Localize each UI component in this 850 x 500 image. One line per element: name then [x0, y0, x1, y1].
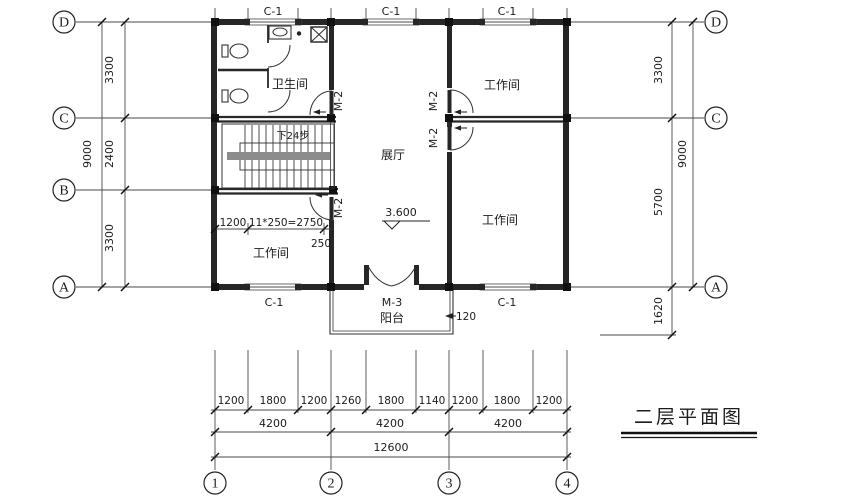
- stair-handrail-band: [227, 152, 330, 160]
- dim-stair-1200: 1200: [220, 217, 247, 229]
- elevation-marker: [382, 221, 430, 229]
- dim-overall-12600: 12600: [374, 441, 409, 454]
- floor-plan-canvas: D C B A D C A 1 2 3 4 3300 2400 3300 900…: [0, 0, 850, 500]
- grid-label-2: 2: [328, 477, 335, 492]
- window-c1-top-right: [479, 19, 536, 25]
- door-label-m3: M-3: [382, 296, 402, 309]
- window-label-c1-top-middle: C-1: [382, 5, 401, 18]
- grid-label-b-left: B: [59, 184, 68, 199]
- room-label-workshop-top: 工作间: [484, 78, 520, 92]
- grid-label-c-left: C: [59, 112, 68, 127]
- door-m2-workshop-top-right: [448, 90, 474, 115]
- title-underline: [621, 433, 757, 438]
- dim-b6: 1140: [419, 395, 446, 407]
- window-c1-top-middle: [362, 19, 419, 25]
- window-label-c1-top-left: C-1: [264, 5, 283, 18]
- door-m2-bathroom: [310, 91, 334, 115]
- dim-bay-3: 4200: [494, 417, 522, 430]
- window-label-c1-bottom-left: C-1: [265, 296, 284, 309]
- balcony-offset-arrow: [445, 313, 456, 319]
- door-m2-workshop-left: [310, 192, 334, 220]
- dim-right-5700: 5700: [652, 188, 665, 216]
- dim-b9: 1200: [536, 395, 563, 407]
- grid-label-4: 4: [564, 477, 571, 492]
- dim-balcony-120: 120: [456, 311, 476, 323]
- dim-b2: 1800: [260, 395, 287, 407]
- room-label-workshop-right: 工作间: [482, 213, 518, 227]
- grid-label-3: 3: [446, 477, 453, 492]
- stall-door-arc-1: [268, 45, 290, 67]
- drain-dot: [297, 31, 301, 35]
- door-label-m2-left: M-2: [332, 198, 345, 218]
- dim-right-3300: 3300: [652, 56, 665, 84]
- door-m2-workshop-right: [448, 125, 474, 150]
- window-c1-bottom-right: [479, 284, 536, 290]
- floor-plan-drawing: D C B A D C A 1 2 3 4 3300 2400 3300 900…: [0, 0, 850, 500]
- dim-right-9000: 9000: [676, 140, 689, 168]
- bathroom-fixtures: [218, 25, 327, 112]
- room-label-hall: 展厅: [381, 148, 405, 162]
- dimension-ticks-vertical: [98, 18, 697, 339]
- stair-note: 下24步: [277, 130, 310, 142]
- window-c1-top-left: [244, 19, 301, 25]
- dim-b1: 1200: [218, 395, 245, 407]
- dim-stair-250: 250: [311, 238, 331, 250]
- grid-label-d-right: D: [711, 16, 721, 31]
- dim-b3: 1200: [301, 395, 328, 407]
- grid-lines: [76, 22, 704, 335]
- toilet-2: [222, 89, 248, 103]
- dim-b4: 1260: [335, 395, 362, 407]
- dim-left-3300-top: 3300: [103, 56, 116, 84]
- room-label-workshop-left: 工作间: [253, 246, 289, 260]
- dimension-lines-vertical: [102, 22, 693, 335]
- drawing-title: 二层平面图: [634, 406, 744, 428]
- dim-right-1620: 1620: [652, 297, 665, 325]
- dim-left-3300-bot: 3300: [103, 224, 116, 252]
- grid-label-1: 1: [212, 477, 219, 492]
- dim-b8: 1800: [494, 395, 521, 407]
- grid-label-c-right: C: [711, 112, 720, 127]
- room-label-bathroom: 卫生间: [272, 77, 308, 91]
- toilet-1: [222, 44, 248, 58]
- dim-left-9000: 9000: [81, 140, 94, 168]
- window-c1-bottom-left: [244, 284, 301, 290]
- door-label-m2-top-right: M-2: [427, 91, 440, 111]
- door-label-m2-right: M-2: [427, 128, 440, 148]
- dim-stair-run: 11*250=2750: [249, 217, 323, 229]
- dim-bay-1: 4200: [259, 417, 287, 430]
- grid-label-d-left: D: [59, 16, 69, 31]
- sink: [269, 26, 291, 39]
- grid-label-a-right: A: [711, 281, 722, 296]
- dim-b7: 1200: [452, 395, 479, 407]
- dim-left-2400: 2400: [103, 140, 116, 168]
- door-label-m2-bathroom: M-2: [332, 91, 345, 111]
- grid-label-a-left: A: [59, 281, 70, 296]
- elevation-value: 3.600: [385, 206, 417, 219]
- floor-drain: [311, 27, 327, 42]
- door-m3-balcony: [364, 265, 419, 286]
- dim-bay-2: 4200: [376, 417, 404, 430]
- window-label-c1-top-right: C-1: [498, 5, 517, 18]
- stall-door-arc-2: [268, 90, 290, 112]
- room-label-balcony: 阳台: [380, 310, 404, 325]
- window-label-c1-bottom-right: C-1: [498, 296, 517, 309]
- dim-b5: 1800: [378, 395, 405, 407]
